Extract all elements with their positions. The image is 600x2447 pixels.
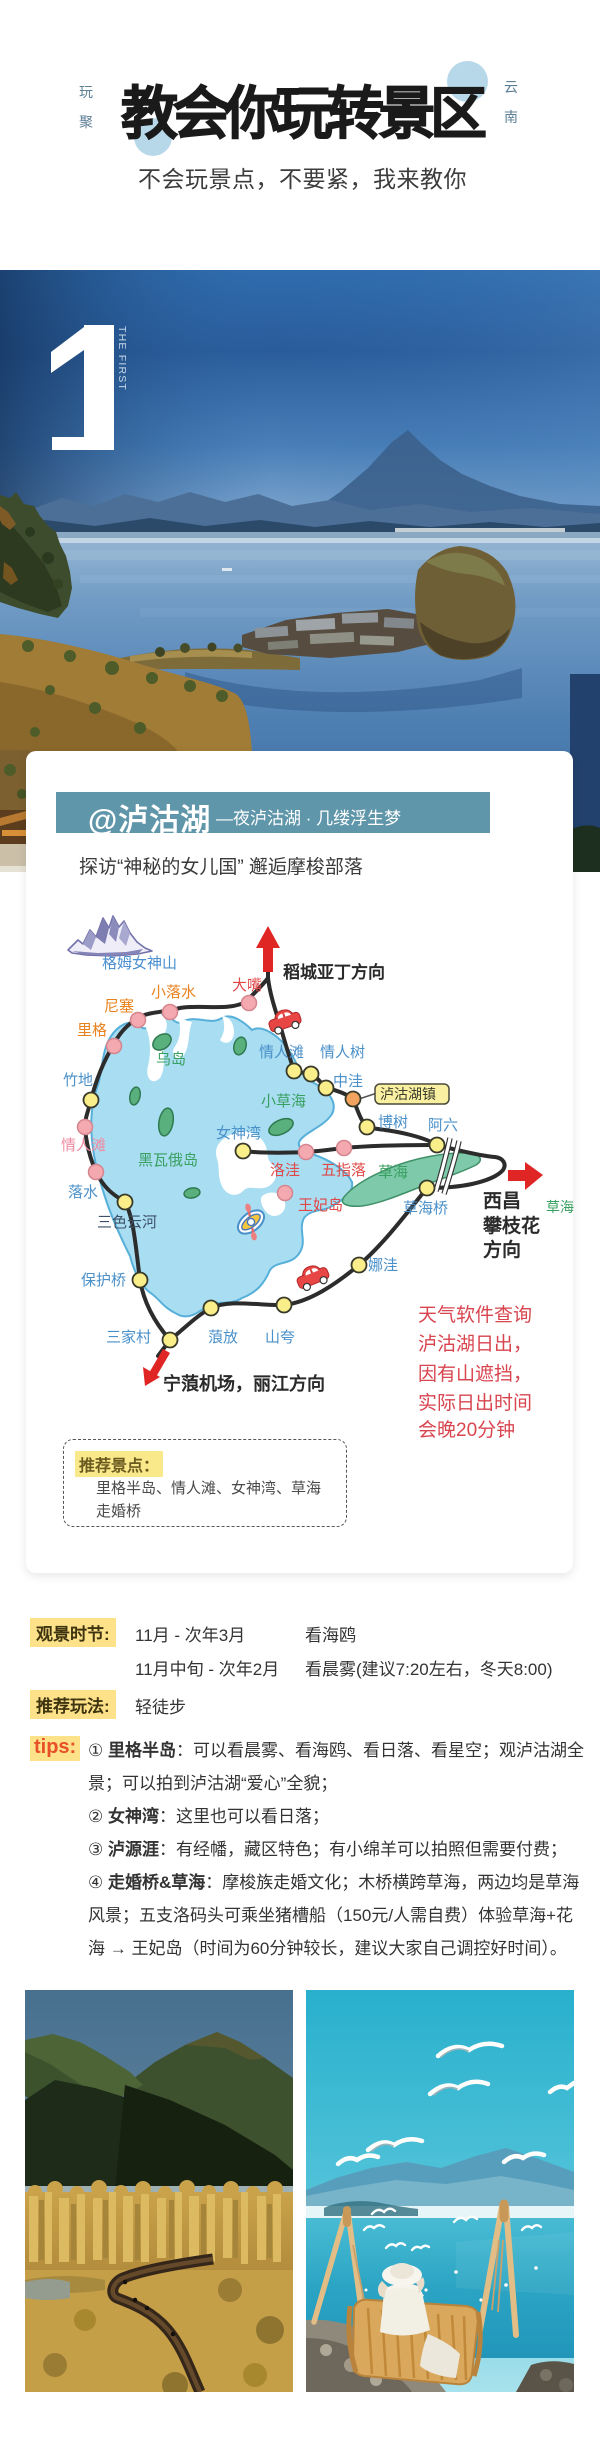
svg-text:攀枝花: 攀枝花 [483,1214,540,1237]
svg-text:尼塞: 尼塞 [104,997,134,1015]
svg-text:情人滩: 情人滩 [259,1044,304,1061]
svg-text:实际日出时间: 实际日出时间 [418,1392,532,1414]
svg-text:草海桥: 草海桥 [403,1200,448,1217]
svg-text:里格: 里格 [77,1022,107,1039]
svg-text:女神湾: 女神湾 [216,1124,261,1142]
svg-text:黑瓦俄岛: 黑瓦俄岛 [138,1152,198,1169]
svg-text:草海: 草海 [546,1199,574,1215]
svg-text:洛洼: 洛洼 [270,1162,300,1179]
svg-text:大嘴: 大嘴 [232,977,262,994]
svg-text:草海: 草海 [378,1164,408,1181]
svg-text:保护桥: 保护桥 [81,1272,126,1289]
svg-text:泸沽湖日出，: 泸沽湖日出， [418,1333,532,1355]
svg-text:格姆女神山: 格姆女神山 [102,954,177,972]
svg-text:博树: 博树 [378,1114,408,1131]
svg-text:小落水: 小落水 [151,984,196,1001]
svg-text:因有山遮挡，: 因有山遮挡， [418,1363,532,1385]
svg-text:西昌: 西昌 [483,1190,521,1212]
svg-text:山夸: 山夸 [265,1329,295,1346]
svg-text:泸沽湖镇: 泸沽湖镇 [380,1086,436,1102]
svg-text:乌岛: 乌岛 [156,1051,186,1068]
svg-text:天气软件查询: 天气软件查询 [418,1304,532,1326]
svg-text:稻城亚丁方向: 稻城亚丁方向 [283,962,385,982]
svg-text:竹地: 竹地 [63,1072,93,1089]
svg-text:三色云河: 三色云河 [97,1214,157,1231]
svg-text:情人树: 情人树 [320,1044,365,1061]
svg-text:方向: 方向 [483,1238,521,1261]
svg-text:会晚20分钟: 会晚20分钟 [418,1419,515,1441]
svg-text:阿六: 阿六 [428,1117,458,1134]
svg-text:蒗放: 蒗放 [208,1329,238,1346]
svg-text:王妃岛: 王妃岛 [298,1197,343,1214]
svg-text:情人滩: 情人滩 [61,1137,106,1154]
svg-text:娜洼: 娜洼 [368,1257,398,1274]
svg-text:中洼: 中洼 [333,1073,363,1090]
svg-text:五指落: 五指落 [321,1162,366,1179]
svg-text:小草海: 小草海 [261,1093,306,1110]
svg-text:落水: 落水 [68,1184,98,1201]
svg-text:THE FIRST: THE FIRST [116,326,128,391]
svg-text:三家村: 三家村 [106,1329,151,1346]
svg-text:宁蒗机场，丽江方向: 宁蒗机场，丽江方向 [163,1373,325,1394]
